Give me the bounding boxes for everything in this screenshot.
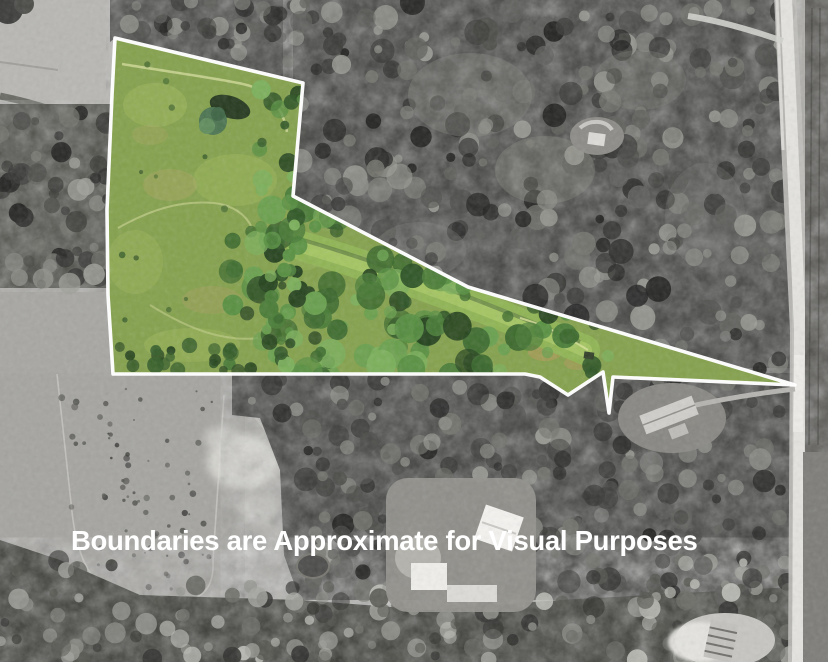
disclaimer-text: Boundaries are Approximate for Visual Pu… [71, 525, 698, 556]
photo-grain [0, 0, 828, 662]
listing-aerial-image: Boundaries are Approximate for Visual Pu… [0, 0, 828, 662]
aerial-photo: Boundaries are Approximate for Visual Pu… [0, 0, 828, 662]
